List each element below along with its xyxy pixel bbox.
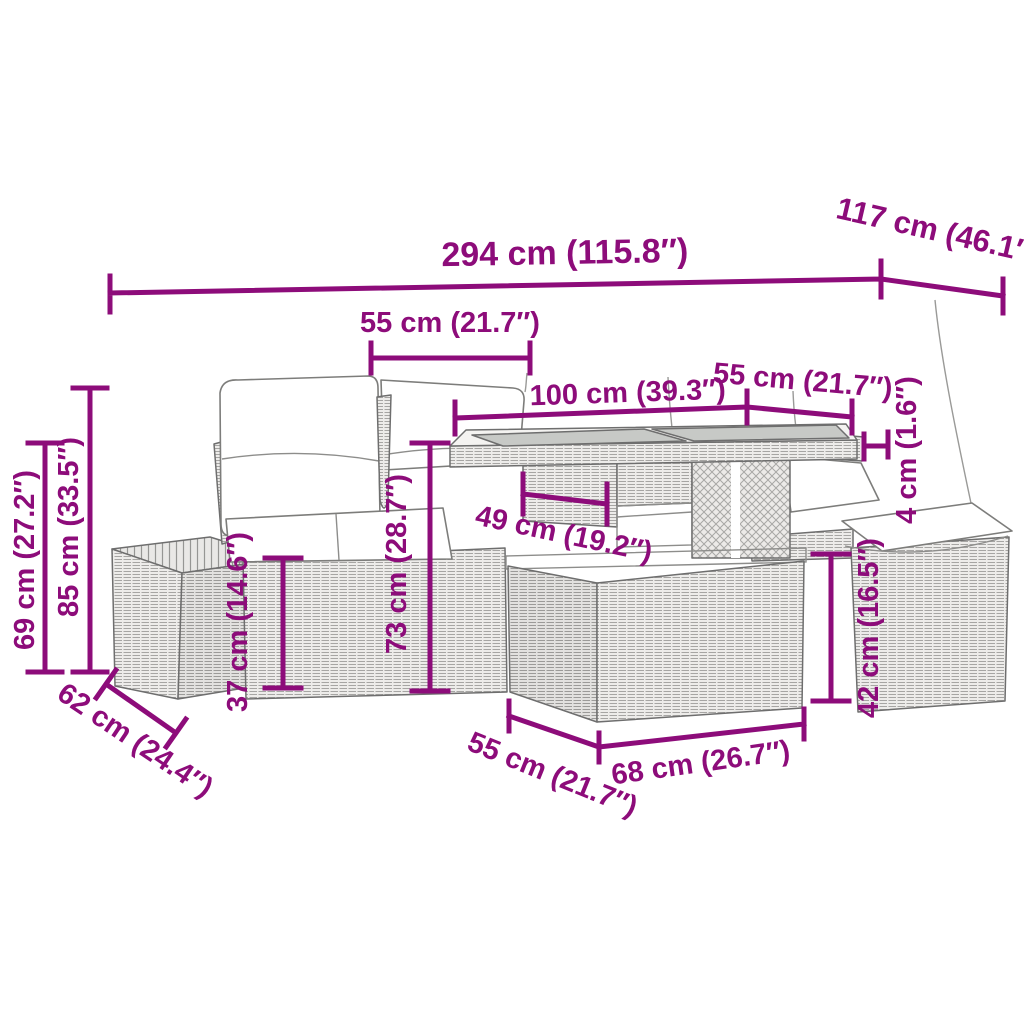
dim-tabletop-thickness-label: 4 cm (1.6″)	[891, 376, 923, 524]
dim-overall-depth-label: 117 cm (46.1″)	[833, 190, 1024, 271]
sofa	[214, 376, 524, 699]
storage-base-front-left	[508, 566, 597, 722]
dim-armrest-height-label: 69 cm (27.2″)	[9, 470, 41, 650]
right-section-seat	[783, 456, 879, 512]
dim-table-height-label: 73 cm (28.7″)	[381, 474, 413, 654]
table-pedestal	[692, 451, 790, 558]
dim-stool-height-line	[813, 554, 849, 701]
dim-stool-height: 42 cm (16.5″)	[813, 538, 885, 718]
dim-seat-width-label: 55 cm (21.7″)	[360, 307, 540, 339]
pedestal-slit	[731, 453, 740, 558]
diagram-canvas: 294 cm (115.8″) 117 cm (46.1″) 55 cm (21…	[0, 0, 1024, 1024]
dimension-annotations: 294 cm (115.8″) 117 cm (46.1″) 55 cm (21…	[9, 190, 1024, 823]
dim-base-width-right: 68 cm (26.7″)	[599, 709, 804, 791]
dim-overall-width-label: 294 cm (115.8″)	[441, 232, 689, 274]
dim-stool-height-label: 42 cm (16.5″)	[853, 538, 885, 718]
dim-table-width: 55 cm (21.7″)	[712, 357, 894, 433]
dim-overall-depth-line	[881, 279, 1003, 313]
dim-back-height-label: 85 cm (33.5″)	[53, 437, 85, 617]
dim-back-height: 85 cm (33.5″)	[53, 388, 107, 672]
dim-table-width-label: 55 cm (21.7″)	[712, 357, 894, 405]
dim-overall-width: 294 cm (115.8″)	[110, 232, 881, 312]
dim-seat-width: 55 cm (21.7″)	[360, 307, 540, 373]
left-stool-front	[112, 549, 182, 699]
dim-seat-height-label: 37 cm (14.6″)	[222, 532, 254, 712]
storage-base-front-right	[597, 561, 804, 722]
storage-base	[506, 548, 806, 722]
dim-overall-depth: 117 cm (46.1″)	[833, 190, 1024, 313]
dimension-diagram: 294 cm (115.8″) 117 cm (46.1″) 55 cm (21…	[0, 0, 1024, 1024]
table-opening-line	[617, 512, 692, 517]
dim-table-length-label: 100 cm (39.3″)	[529, 374, 726, 413]
dim-tabletop-thickness-bracket	[864, 432, 888, 459]
dim-seat-width-line	[371, 343, 530, 373]
